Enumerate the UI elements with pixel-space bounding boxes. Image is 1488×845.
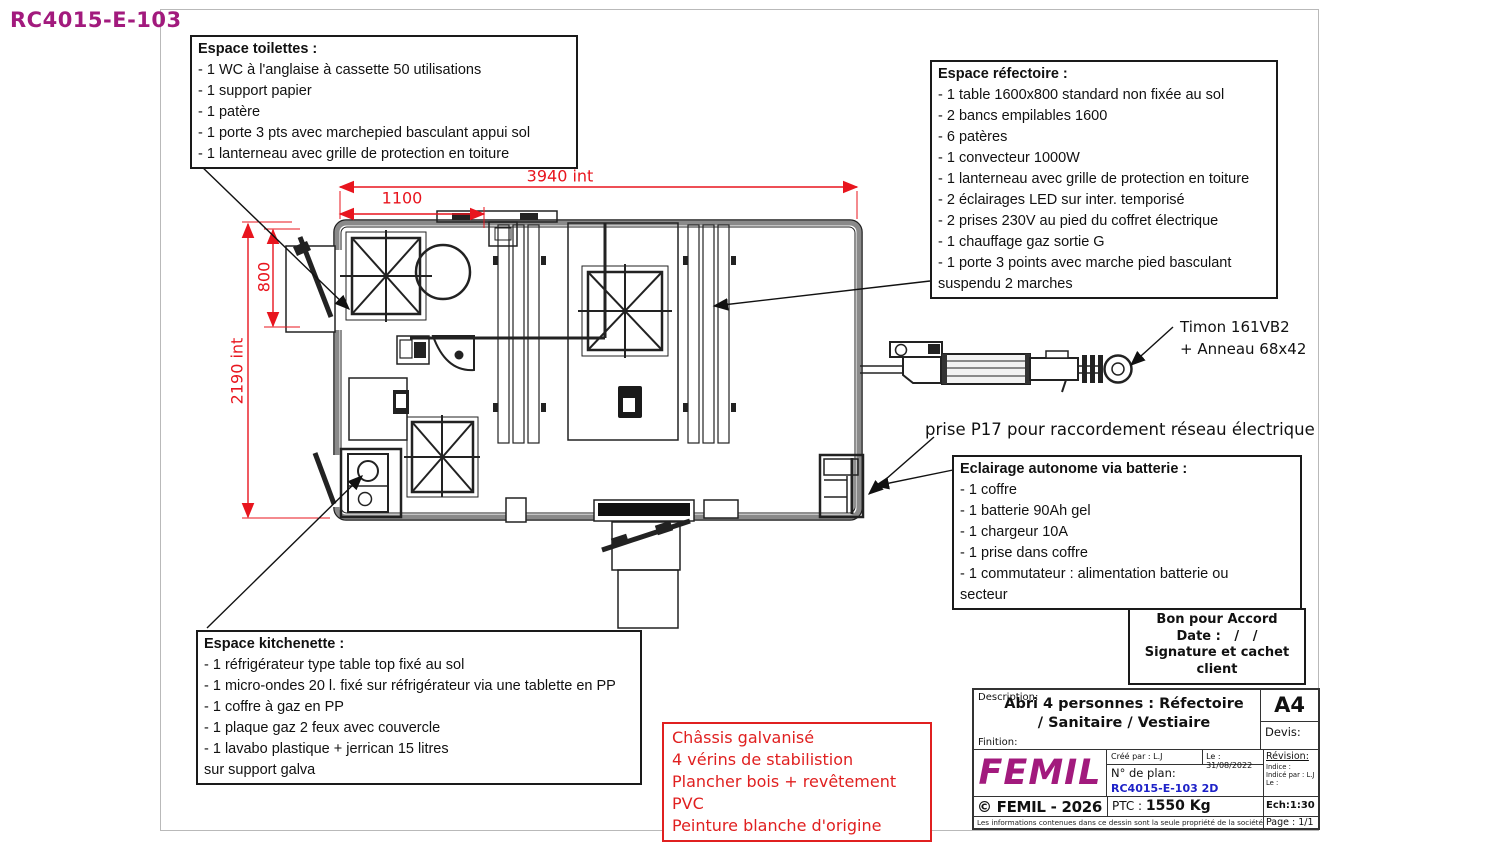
plan-number: RC4015-E-103 2D xyxy=(1111,782,1259,795)
callout-prise-p17: prise P17 pour raccordement réseau élect… xyxy=(925,420,1315,439)
titleblock-ptc-row: © FEMIL - 2026 PTC : 1550 Kg Ech:1:30 xyxy=(974,796,1318,816)
femil-logo: FEMIL xyxy=(979,753,1102,793)
approval-signature: Signature et cachet client xyxy=(1130,645,1304,678)
list-item: - 1 réfrigérateur type table top fixé au… xyxy=(204,655,634,676)
callout-timon-line1: Timon 161VB2 xyxy=(1180,318,1290,336)
list-item: - 6 patères xyxy=(938,127,1270,148)
towing-ring xyxy=(1105,356,1132,383)
paper-format: A4 xyxy=(1261,690,1318,722)
list-item: - 1 lanterneau avec grille de protection… xyxy=(198,144,570,165)
ptc-value: 1550 Kg xyxy=(1146,798,1211,814)
format-cell: A4 Devis: xyxy=(1261,690,1318,749)
approval-box: Bon pour Accord Date : / / Signature et … xyxy=(1128,608,1306,685)
list-item: 4 vérins de stabilistion xyxy=(672,749,922,771)
plan-number-cell: N° de plan: RC4015-E-103 2D xyxy=(1107,765,1263,796)
disclaimer: Les informations contenues dans ce dessi… xyxy=(974,817,1263,828)
note-items: - 1 réfrigérateur type table top fixé au… xyxy=(204,655,634,781)
revision-label: Révision: xyxy=(1266,751,1316,762)
devis-label: Devis: xyxy=(1261,722,1318,739)
list-item: Plancher bois + revêtement PVC xyxy=(672,771,922,815)
indice-label: Indice : xyxy=(1266,763,1316,771)
creation-date: Le : 31/08/2022 xyxy=(1203,750,1263,764)
timon-drawbar xyxy=(860,342,1132,392)
list-item: - 1 batterie 90Ah gel xyxy=(960,501,1294,522)
list-item: suspendu 2 marches xyxy=(938,274,1270,295)
list-item: - 1 chauffage gaz sortie G xyxy=(938,232,1270,253)
list-item: - 1 table 1600x800 standard non fixée au… xyxy=(938,85,1270,106)
list-item: - 1 micro-ondes 20 l. fixé sur réfrigéra… xyxy=(204,676,634,697)
list-item: - 1 WC à l'anglaise à cassette 50 utilis… xyxy=(198,60,570,81)
plan-info-cell: Créé par : L.J Le : 31/08/2022 N° de pla… xyxy=(1107,750,1263,796)
note-espace-kitchenette: Espace kitchenette : - 1 réfrigérateur t… xyxy=(196,630,642,785)
list-item: - 1 plaque gaz 2 feux avec couvercle xyxy=(204,718,634,739)
titleblock-footer-row: Les informations contenues dans ce dessi… xyxy=(974,816,1318,828)
note-items: - 1 WC à l'anglaise à cassette 50 utilis… xyxy=(198,60,570,165)
note-title: Eclairage autonome via batterie : xyxy=(960,459,1294,480)
list-item: secteur xyxy=(960,585,1294,606)
dim-overall-depth: 2190 int xyxy=(228,338,247,405)
list-item: - 1 convecteur 1000W xyxy=(938,148,1270,169)
dim-toilet-width: 1100 xyxy=(382,189,423,208)
copyright: © FEMIL - 2026 xyxy=(974,797,1107,816)
note-chassis: Châssis galvanisé4 vérins de stabilistio… xyxy=(662,722,932,842)
approval-date: Date : / / xyxy=(1130,629,1304,646)
list-item: - 1 coffre xyxy=(960,480,1294,501)
note-title: Espace kitchenette : xyxy=(204,634,634,655)
leader-kitchenette xyxy=(207,476,362,628)
dim-overall-width: 3940 int xyxy=(527,167,594,186)
list-item: - 1 prise dans coffre xyxy=(960,543,1294,564)
titleblock-main-row: FEMIL Créé par : L.J Le : 31/08/2022 N° … xyxy=(974,749,1318,796)
list-item: - 2 éclairages LED sur inter. temporisé xyxy=(938,190,1270,211)
list-item: - 1 support papier xyxy=(198,81,570,102)
note-espace-toilettes: Espace toilettes : - 1 WC à l'anglaise à… xyxy=(190,35,578,169)
description-line2: / Sanitaire / Vestiaire xyxy=(988,714,1260,733)
list-item: - 1 commutateur : alimentation batterie … xyxy=(960,564,1294,585)
list-item: - 2 bancs empilables 1600 xyxy=(938,106,1270,127)
list-item: sur support galva xyxy=(204,760,634,781)
title-block: Description: Abri 4 personnes : Réfectoi… xyxy=(972,688,1320,830)
list-item: - 1 chargeur 10A xyxy=(960,522,1294,543)
created-by: Créé par : L.J xyxy=(1107,750,1203,764)
list-item: - 1 coffre à gaz en PP xyxy=(204,697,634,718)
description-cell: Description: Abri 4 personnes : Réfectoi… xyxy=(974,690,1261,749)
leader-timon xyxy=(1131,327,1173,365)
list-item: Peinture blanche d'origine xyxy=(672,815,922,837)
list-item: - 1 lanterneau avec grille de protection… xyxy=(938,169,1270,190)
note-title: Espace réfectoire : xyxy=(938,64,1270,85)
indice-par: Indicé par : L.J xyxy=(1266,771,1316,779)
description-label: Description: xyxy=(978,692,1038,703)
indice-le: Le : xyxy=(1266,779,1316,787)
finition-label: Finition: xyxy=(978,737,1017,748)
list-item: - 1 porte 3 pts avec marchepied basculan… xyxy=(198,123,570,144)
scale: Ech:1:30 xyxy=(1263,797,1318,816)
page-number: Page : 1/1 xyxy=(1263,817,1318,828)
list-item: - 1 porte 3 points avec marche pied basc… xyxy=(938,253,1270,274)
logo-cell: FEMIL xyxy=(974,750,1107,796)
ptc-label: PTC : xyxy=(1112,799,1146,813)
plan-number-label: N° de plan: xyxy=(1111,766,1259,780)
list-item: - 1 lavabo plastique + jerrican 15 litre… xyxy=(204,739,634,760)
note-items: Châssis galvanisé4 vérins de stabilistio… xyxy=(672,727,922,837)
titleblock-description-row: Description: Abri 4 personnes : Réfectoi… xyxy=(974,690,1318,749)
dim-alcove-depth: 800 xyxy=(255,262,274,293)
list-item: Châssis galvanisé xyxy=(672,727,922,749)
approval-title: Bon pour Accord xyxy=(1130,612,1304,629)
note-espace-refectoire: Espace réfectoire : - 1 table 1600x800 s… xyxy=(930,60,1278,299)
list-item: - 2 prises 230V au pied du coffret élect… xyxy=(938,211,1270,232)
note-items: - 1 coffre- 1 batterie 90Ah gel- 1 charg… xyxy=(960,480,1294,606)
author-row: Créé par : L.J Le : 31/08/2022 xyxy=(1107,750,1263,765)
ptc-cell: PTC : 1550 Kg xyxy=(1107,797,1263,816)
note-title: Espace toilettes : xyxy=(198,39,570,60)
callout-timon-line2: + Anneau 68x42 xyxy=(1180,340,1306,358)
list-item: - 1 patère xyxy=(198,102,570,123)
note-items: - 1 table 1600x800 standard non fixée au… xyxy=(938,85,1270,295)
revision-cell: Révision: Indice : Indicé par : L.J Le : xyxy=(1263,750,1318,796)
drawing-page: { "doc": { "ref": "RC4015-E-103" }, "col… xyxy=(0,0,1488,845)
note-eclairage-batterie: Eclairage autonome via batterie : - 1 co… xyxy=(952,455,1302,610)
